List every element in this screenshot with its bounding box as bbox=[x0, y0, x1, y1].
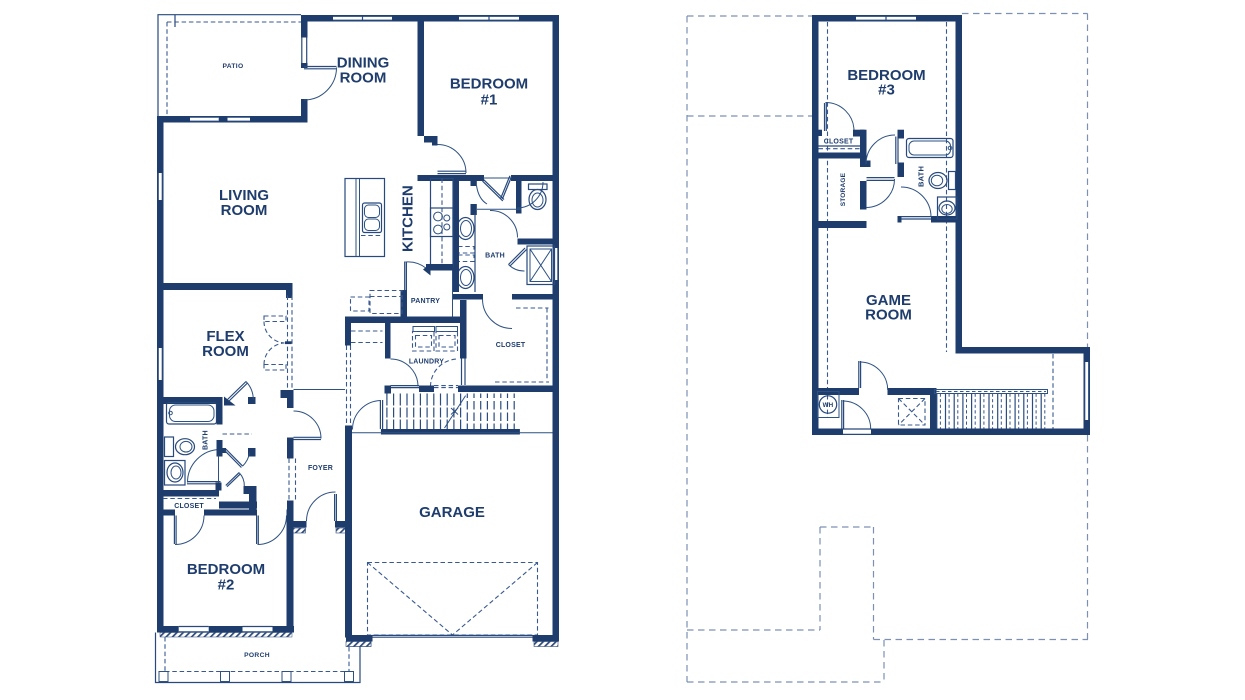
svg-text:ROOM: ROOM bbox=[340, 70, 387, 87]
svg-text:CLOSET: CLOSET bbox=[174, 503, 204, 510]
svg-text:PANTRY: PANTRY bbox=[411, 298, 440, 305]
svg-text:BATH: BATH bbox=[203, 430, 210, 450]
svg-text:FOYER: FOYER bbox=[308, 465, 333, 472]
svg-text:#2: #2 bbox=[218, 577, 235, 594]
svg-text:WH: WH bbox=[823, 402, 834, 409]
svg-text:ROOM: ROOM bbox=[221, 202, 268, 219]
svg-text:BEDROOM: BEDROOM bbox=[187, 561, 265, 578]
svg-text:PATIO: PATIO bbox=[223, 63, 244, 70]
svg-text:ROOM: ROOM bbox=[202, 343, 249, 360]
svg-text:GARAGE: GARAGE bbox=[419, 504, 485, 521]
svg-text:PORCH: PORCH bbox=[244, 652, 270, 659]
svg-text:#3: #3 bbox=[878, 82, 895, 99]
svg-text:LAUNDRY: LAUNDRY bbox=[409, 359, 444, 366]
svg-text:STORAGE: STORAGE bbox=[840, 172, 847, 206]
svg-text:KITCHEN: KITCHEN bbox=[400, 185, 417, 252]
svg-text:CLOSET: CLOSET bbox=[824, 139, 854, 146]
svg-text:#1: #1 bbox=[481, 92, 498, 109]
svg-text:CLOSET: CLOSET bbox=[496, 342, 526, 349]
svg-text:BEDROOM: BEDROOM bbox=[450, 76, 528, 93]
svg-text:BATH: BATH bbox=[917, 166, 926, 187]
svg-text:BATH: BATH bbox=[485, 252, 505, 259]
svg-text:ROOM: ROOM bbox=[865, 307, 912, 324]
